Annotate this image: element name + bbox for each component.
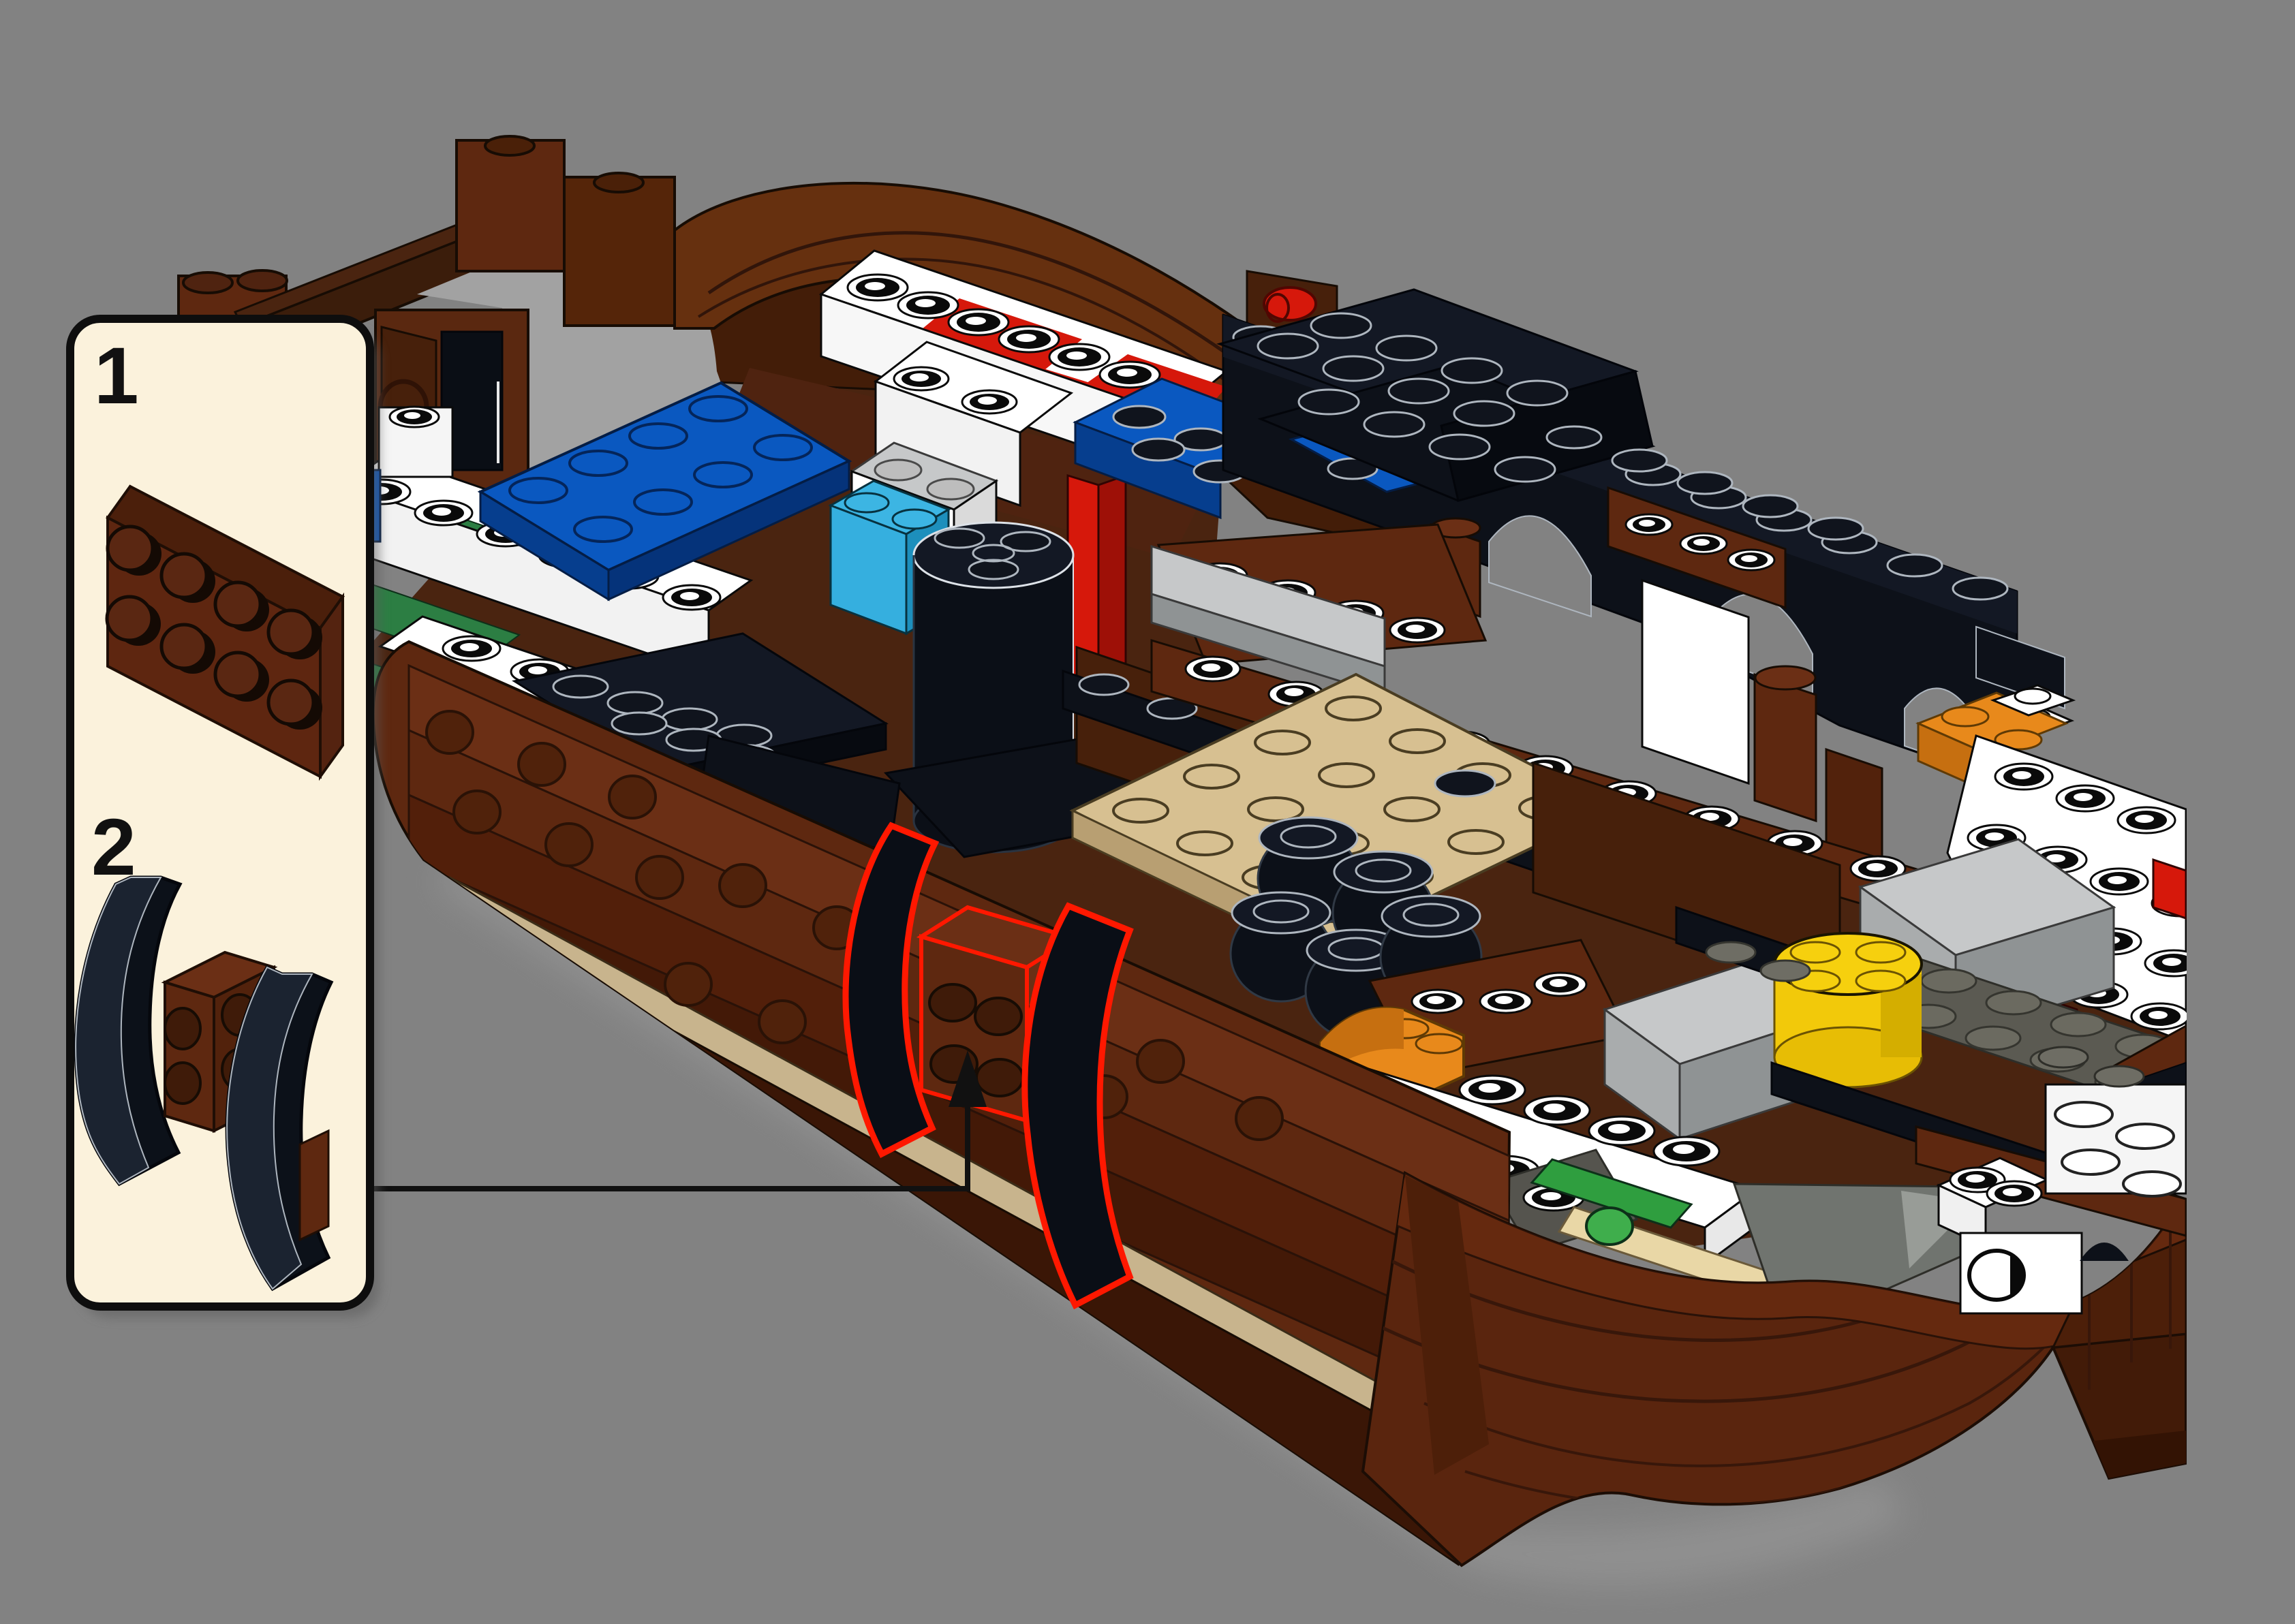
svg-text:1: 1 (94, 331, 139, 421)
